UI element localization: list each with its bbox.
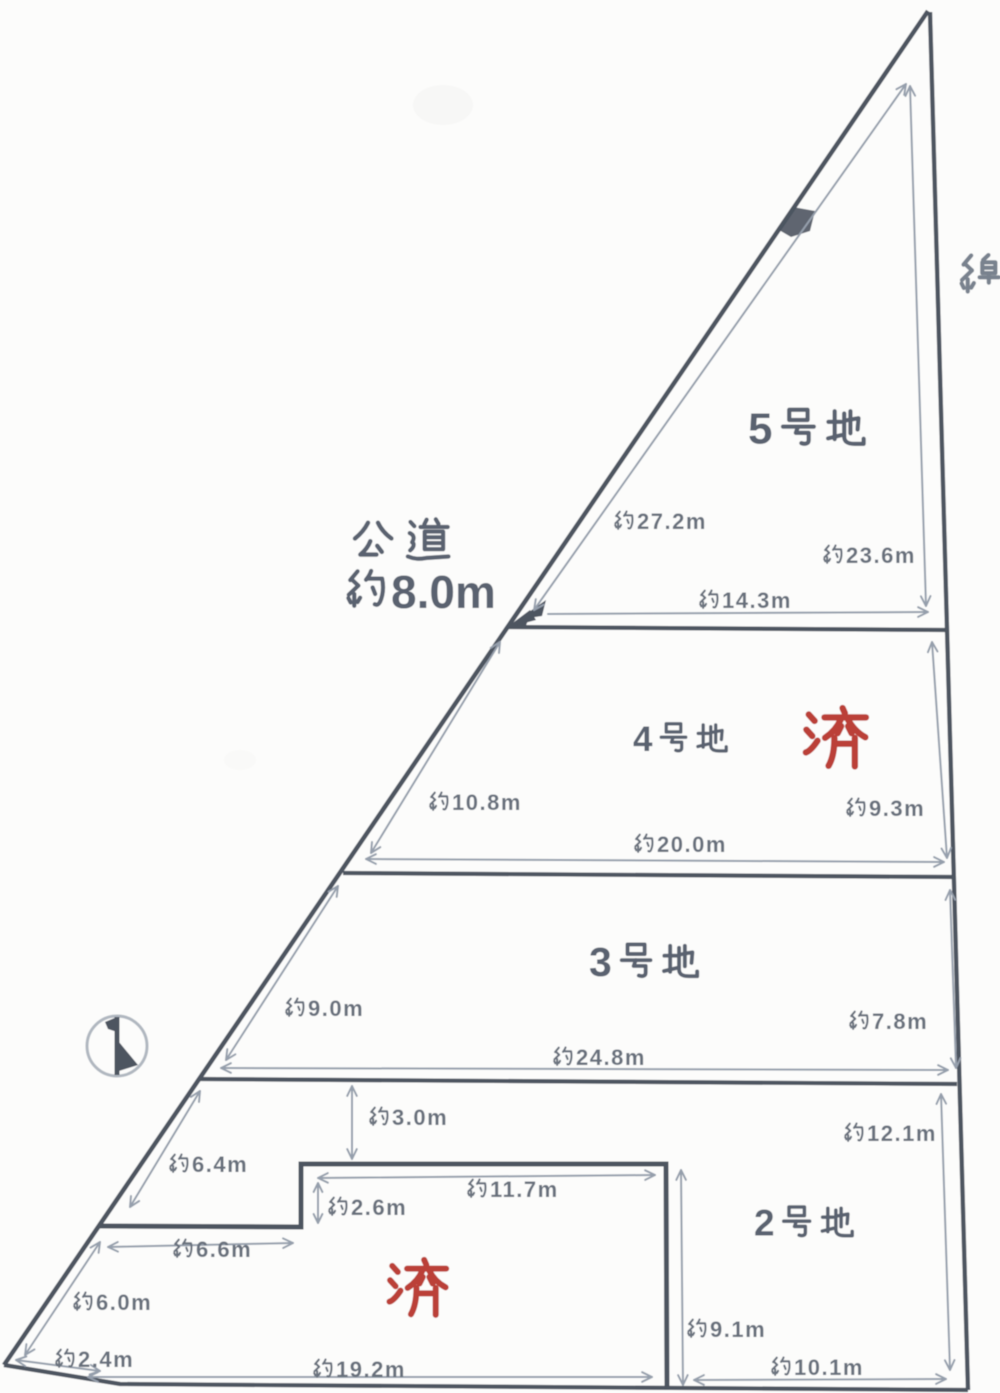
- svg-text:9.1m: 9.1m: [710, 1317, 766, 1342]
- svg-text:24.8m: 24.8m: [576, 1045, 646, 1070]
- svg-text:10.8m: 10.8m: [452, 790, 522, 815]
- svg-text:14.3m: 14.3m: [722, 588, 792, 613]
- svg-text:23.6m: 23.6m: [846, 543, 916, 568]
- svg-text:7.8m: 7.8m: [872, 1009, 928, 1034]
- svg-text:20.0m: 20.0m: [657, 832, 727, 857]
- svg-text:10.1m: 10.1m: [794, 1355, 864, 1380]
- svg-text:6.6m: 6.6m: [196, 1237, 252, 1262]
- svg-text:12.1m: 12.1m: [867, 1121, 937, 1146]
- svg-text:9.3m: 9.3m: [869, 796, 925, 821]
- svg-text:5: 5: [748, 405, 772, 454]
- svg-text:4: 4: [633, 720, 653, 759]
- svg-text:11.7m: 11.7m: [490, 1177, 559, 1202]
- svg-text:9.0m: 9.0m: [308, 996, 364, 1021]
- svg-text:3: 3: [589, 939, 612, 985]
- svg-text:6.4m: 6.4m: [192, 1152, 248, 1177]
- svg-text:19.2m: 19.2m: [336, 1357, 406, 1382]
- svg-text:27.2m: 27.2m: [637, 509, 707, 534]
- svg-text:3.0m: 3.0m: [392, 1105, 448, 1130]
- svg-text:2.4m: 2.4m: [78, 1347, 134, 1372]
- svg-text:2.6m: 2.6m: [351, 1195, 407, 1220]
- svg-text:6.0m: 6.0m: [96, 1290, 152, 1315]
- svg-text:8.0m: 8.0m: [391, 566, 496, 618]
- svg-text:2: 2: [754, 1203, 775, 1244]
